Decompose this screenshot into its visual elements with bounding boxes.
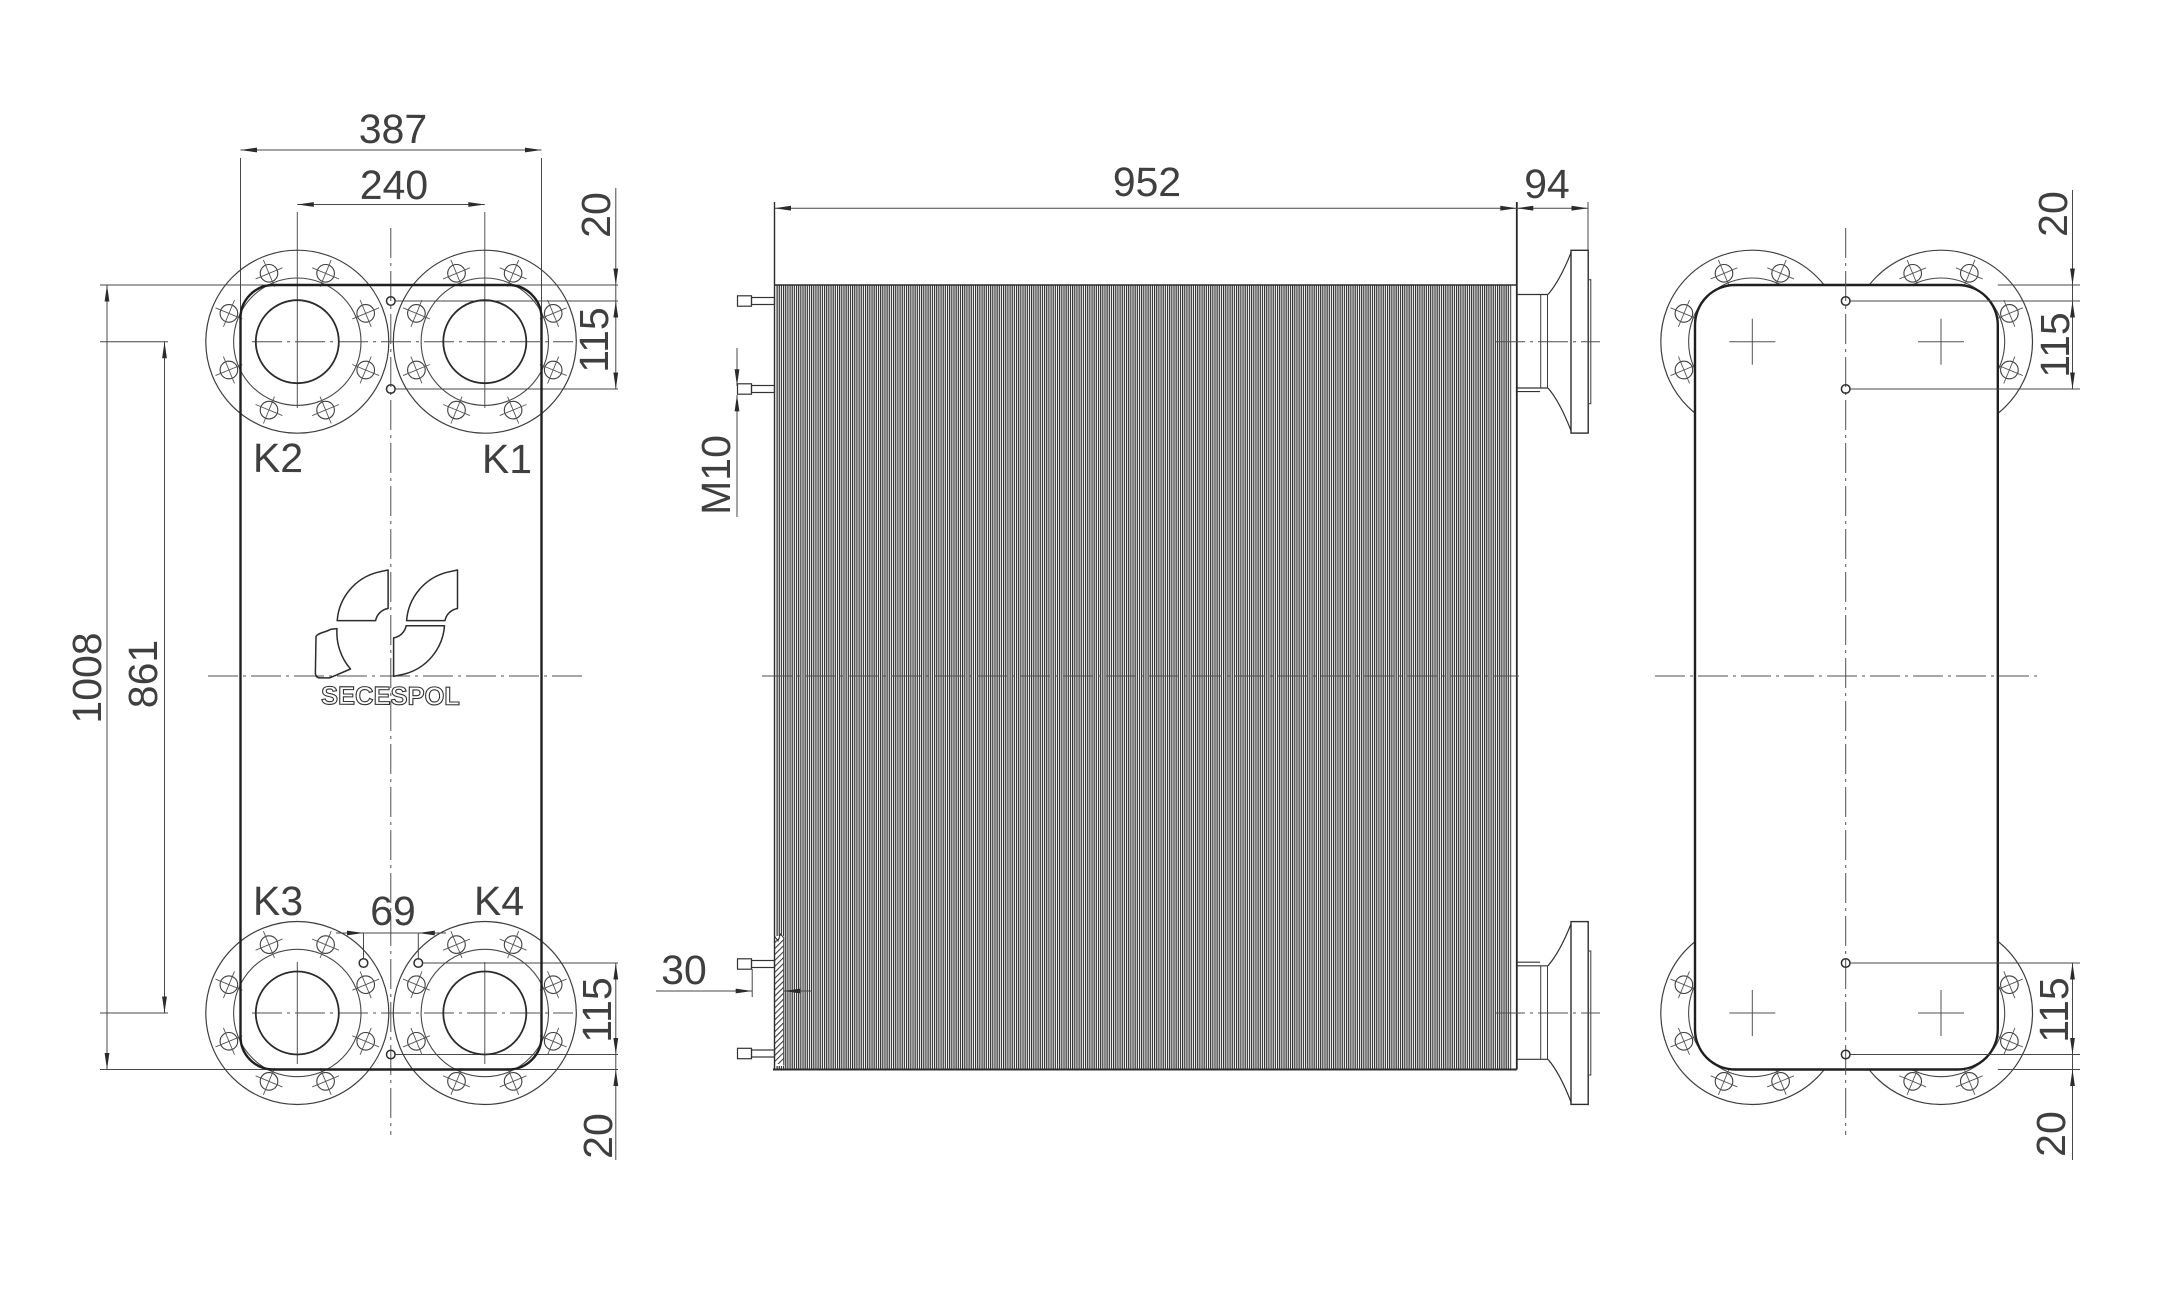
svg-text:115: 115 bbox=[2031, 977, 2077, 1042]
svg-text:115: 115 bbox=[571, 307, 617, 372]
svg-text:1008: 1008 bbox=[64, 632, 110, 723]
svg-text:K4: K4 bbox=[474, 878, 524, 924]
svg-text:20: 20 bbox=[573, 192, 619, 238]
svg-text:240: 240 bbox=[360, 162, 429, 208]
svg-text:20: 20 bbox=[2028, 1111, 2074, 1157]
svg-text:952: 952 bbox=[1113, 159, 1182, 205]
svg-text:K3: K3 bbox=[253, 878, 303, 924]
svg-text:861: 861 bbox=[120, 640, 166, 708]
svg-text:M10: M10 bbox=[693, 435, 739, 515]
svg-text:SECESPOL: SECESPOL bbox=[321, 682, 460, 711]
svg-text:20: 20 bbox=[575, 1113, 621, 1159]
svg-text:30: 30 bbox=[661, 947, 707, 993]
svg-text:387: 387 bbox=[359, 106, 428, 152]
svg-text:115: 115 bbox=[2032, 312, 2078, 377]
svg-text:69: 69 bbox=[370, 888, 416, 934]
svg-text:115: 115 bbox=[574, 977, 620, 1042]
svg-text:K1: K1 bbox=[482, 436, 532, 482]
svg-text:20: 20 bbox=[2030, 191, 2076, 237]
svg-text:K2: K2 bbox=[253, 435, 303, 481]
svg-text:94: 94 bbox=[1524, 161, 1570, 207]
